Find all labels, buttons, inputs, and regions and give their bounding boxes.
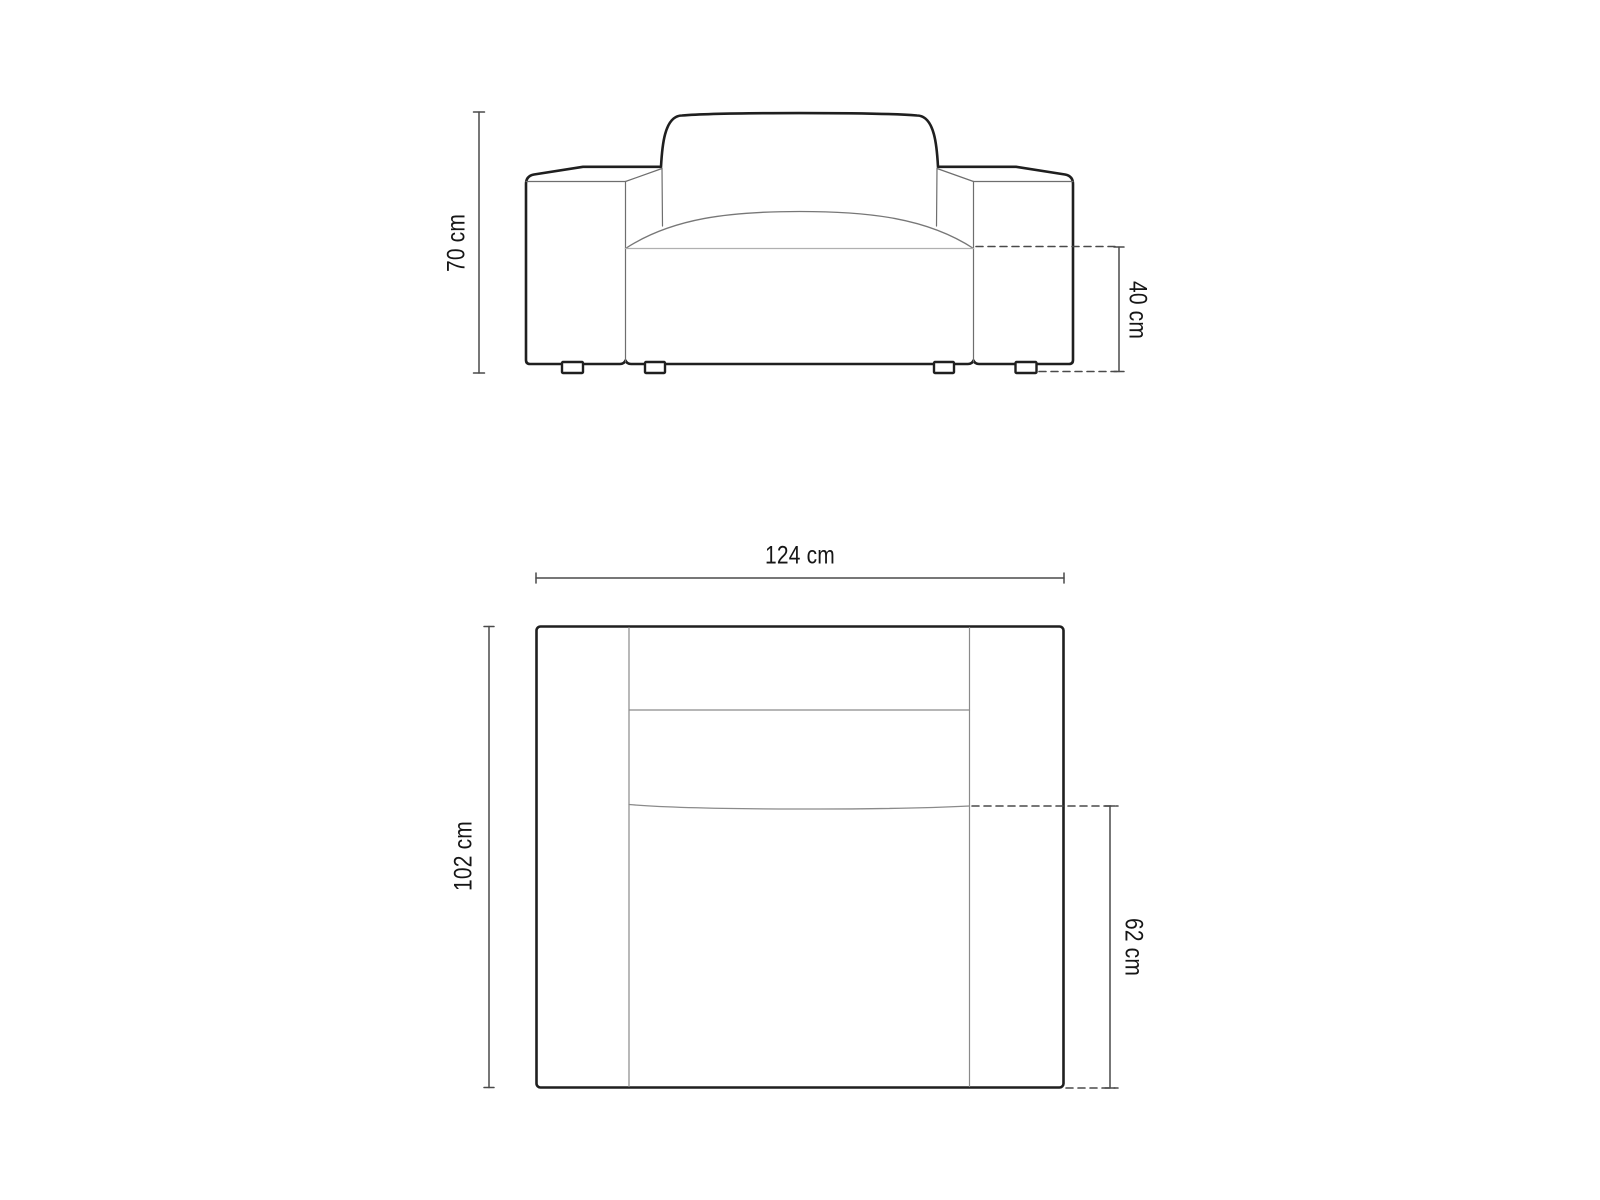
dim-label-width: 124 cm	[765, 542, 835, 571]
dimension-line-depth	[484, 627, 494, 1088]
top-outline	[537, 627, 1064, 1088]
dimension-line-height	[474, 112, 485, 373]
diagram-canvas: 70 cm 40 cm 124 cm 102 cm 62 cm	[0, 0, 1600, 1200]
dim-label-depth: 102 cm	[450, 821, 479, 891]
dim-label-height: 70 cm	[443, 214, 472, 272]
foot	[934, 362, 954, 373]
foot	[1016, 362, 1037, 373]
front-outline	[526, 113, 1073, 364]
foot	[645, 362, 665, 373]
armchair-dimension-drawing	[0, 0, 1600, 1200]
dim-label-seat-depth: 62 cm	[1119, 918, 1148, 976]
dimension-line-width	[536, 573, 1064, 583]
dim-label-seat-height: 40 cm	[1123, 281, 1152, 339]
front-view	[474, 112, 1125, 373]
foot	[562, 362, 583, 373]
dimension-line-seat-depth	[1105, 806, 1115, 1088]
top-view	[484, 573, 1118, 1088]
